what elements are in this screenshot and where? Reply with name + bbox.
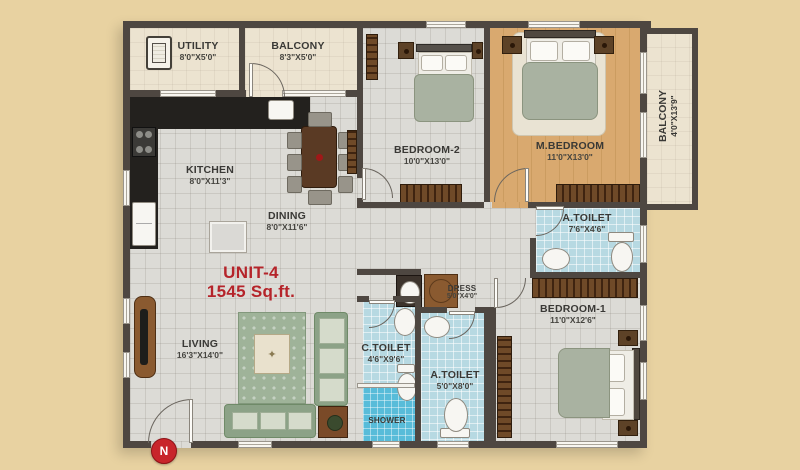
door-leaf <box>494 278 498 308</box>
room-label-balcony-top: BALCONY 8'3"X5'0" <box>255 40 341 62</box>
wall <box>647 204 698 210</box>
dining-chair <box>308 190 332 205</box>
wall <box>363 202 484 208</box>
pillow <box>562 41 590 61</box>
floor-plan: ✦ <box>0 0 800 470</box>
room-label-kitchen: KITCHEN 8'0"X11'3" <box>163 164 257 186</box>
fridge-icon <box>132 202 156 246</box>
wall <box>421 307 447 313</box>
window <box>426 21 466 28</box>
door-leaf <box>536 206 564 210</box>
window <box>282 90 346 97</box>
washbasin-icon <box>542 248 570 270</box>
door-leaf <box>449 311 475 315</box>
room-label-atoilet-top: A.TOILET 7'6"X4'6" <box>538 212 636 234</box>
room-label-dining: DINING 8'0"X11'6" <box>240 210 334 232</box>
unit-title: UNIT-4 1545 Sq.ft. <box>188 263 314 301</box>
room-label-master-bedroom: M.BEDROOM 11'0"X13'0" <box>518 140 622 162</box>
bedside-table <box>398 42 414 59</box>
wall <box>123 21 130 448</box>
shower-threshold <box>357 383 415 388</box>
window <box>437 441 469 448</box>
pillow <box>421 55 443 71</box>
door-leaf <box>525 168 529 202</box>
window <box>123 352 130 378</box>
window <box>640 225 647 263</box>
door-leaf <box>369 300 395 304</box>
corner-table <box>318 406 348 438</box>
wall <box>647 28 698 34</box>
window <box>556 441 618 448</box>
room-label-ctoilet: C.TOILET 4'6"X9'6" <box>340 342 432 364</box>
door-opening <box>492 202 528 208</box>
kitchen-sink-icon <box>268 100 294 120</box>
room-label-bedroom2: BEDROOM-2 10'0"X13'0" <box>378 144 476 166</box>
washbasin-icon <box>424 316 450 338</box>
dining-chair <box>287 154 302 171</box>
room-label-atoilet-bottom: A.TOILET 5'0"X8'0" <box>408 369 502 391</box>
toilet-bowl-icon <box>444 398 468 432</box>
compass-north-icon: N <box>151 438 177 464</box>
master-wardrobe <box>556 184 640 203</box>
dining-chair <box>287 132 302 149</box>
room-label-utility: UTILITY 8'0"X5'0" <box>155 40 241 62</box>
wall <box>357 296 369 302</box>
bedside-table <box>594 36 614 54</box>
room-label-bedroom1: BEDROOM-1 11'0"X12'6" <box>524 303 622 325</box>
window <box>640 362 647 400</box>
window <box>123 298 130 324</box>
dining-chair <box>287 176 302 193</box>
wall <box>530 238 536 272</box>
washbasin-icon <box>394 308 416 336</box>
window <box>238 441 272 448</box>
pillow <box>530 41 558 61</box>
sofa-cushion <box>288 412 312 430</box>
dining-table <box>301 126 337 188</box>
wall <box>357 269 421 275</box>
stove-icon <box>132 127 156 157</box>
crockery-cabinet <box>347 130 357 174</box>
room-label-living: LIVING 16'3"X14'0" <box>153 338 247 360</box>
door-leaf <box>362 168 366 200</box>
tv-unit <box>134 296 156 378</box>
sofa-cushion <box>319 318 345 344</box>
window <box>123 170 130 206</box>
dining-chair <box>338 176 353 193</box>
sofa-cushion <box>232 412 258 430</box>
bedroom1-wardrobe <box>532 278 638 298</box>
bed-headboard <box>416 44 472 52</box>
window <box>528 21 580 28</box>
bedroom2-dresser <box>366 34 378 80</box>
bed-blanket <box>414 74 474 122</box>
plant-icon <box>327 415 343 431</box>
sofa-cushion <box>319 378 345 402</box>
wall <box>357 28 363 178</box>
dining-chair <box>308 112 332 127</box>
bedroom2-wardrobe <box>400 184 462 203</box>
wall <box>530 272 640 278</box>
bed-blanket <box>558 348 610 418</box>
sofa-cushion <box>260 412 286 430</box>
pillow <box>445 55 467 71</box>
bedside-table <box>618 330 638 346</box>
room-label-balcony-right: BALCONY 4'0"X13'9" <box>620 66 716 166</box>
bedside-table <box>472 42 483 59</box>
room-label-shower: SHOWER <box>358 416 416 425</box>
bed-headboard <box>524 30 596 38</box>
door-leaf <box>249 63 253 97</box>
bed-blanket <box>522 62 598 120</box>
room-label-dress: DRESS 5'0"X4'0" <box>432 284 492 301</box>
bedside-table <box>502 36 522 54</box>
wall <box>484 28 490 202</box>
tv-icon <box>140 309 148 365</box>
toilet-bowl-icon <box>611 242 633 272</box>
entry-door-leaf <box>189 399 193 443</box>
bedside-table <box>618 420 638 436</box>
window <box>640 305 647 341</box>
window <box>160 90 216 97</box>
coffee-table: ✦ <box>254 334 290 374</box>
window <box>372 441 400 448</box>
